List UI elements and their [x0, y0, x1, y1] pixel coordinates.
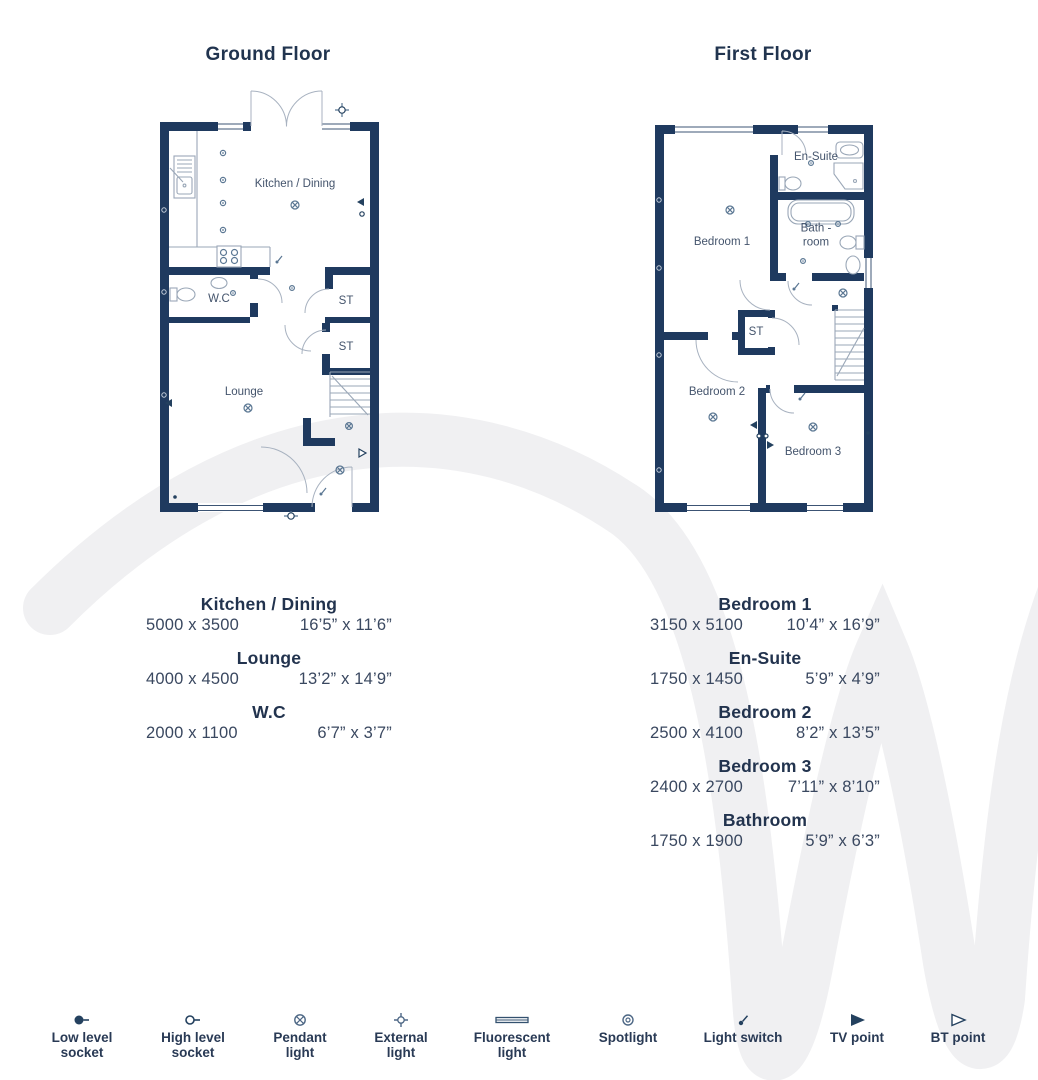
- room-label-bathroom: Bath -room: [793, 222, 839, 251]
- light-switch-icon: [320, 488, 327, 496]
- spotlight-icon: [611, 1012, 645, 1028]
- door-swings: [696, 131, 812, 413]
- dimension-entry: Kitchen / Dining 5000 x 3500 16’5” x 11’…: [146, 594, 392, 635]
- dimension-entry: Lounge 4000 x 4500 13’2” x 14’9”: [146, 648, 392, 689]
- pendant-light-icon: [291, 201, 299, 209]
- legend-label: BT point: [931, 1030, 986, 1045]
- fluorescent-light-icon: [492, 1012, 532, 1028]
- dimension-imperial: 13’2” x 14’9”: [299, 670, 392, 689]
- dimension-metric: 5000 x 3500: [146, 616, 239, 635]
- toilet: [779, 177, 785, 190]
- legend-label: Fluorescent light: [466, 1030, 558, 1060]
- room-label-st: ST: [749, 325, 764, 339]
- dimension-metric: 4000 x 4500: [146, 670, 239, 689]
- tv-point-icon: [357, 198, 364, 206]
- room-label-st2: ST: [339, 340, 354, 354]
- ground-floor-title: Ground Floor: [153, 44, 383, 66]
- legend-item-spotlight: Spotlight: [573, 1012, 683, 1045]
- dimension-imperial: 5’9” x 6’3”: [805, 832, 880, 851]
- high-level-socket-icon: [360, 212, 364, 216]
- dimension-metric: 2400 x 2700: [650, 778, 743, 797]
- legend-label: Low level socket: [42, 1030, 122, 1060]
- legend-label: High level socket: [153, 1030, 233, 1060]
- low-level-socket-icon: [173, 495, 177, 499]
- tv-point-icon: [750, 421, 757, 429]
- dimension-entry: En-Suite 1750 x 1450 5’9” x 4’9”: [650, 648, 880, 689]
- staircase: [330, 372, 370, 417]
- room-label-ensuite: En-Suite: [794, 150, 838, 164]
- room-label-lounge: Lounge: [225, 385, 263, 399]
- dimension-imperial: 8’2” x 13’5”: [796, 724, 880, 743]
- dimension-imperial: 5’9” x 4’9”: [805, 670, 880, 689]
- first-floor-dimensions: Bedroom 1 3150 x 5100 10’4” x 16’9” En-S…: [650, 594, 880, 864]
- legend-item-fluorescent-light: Fluorescent light: [466, 1012, 558, 1060]
- dimension-metric: 2500 x 4100: [650, 724, 743, 743]
- legend-label: TV point: [830, 1030, 884, 1045]
- toilet: [856, 236, 864, 249]
- staircase: [835, 310, 864, 380]
- toilet: [170, 288, 177, 301]
- legend-label: Light switch: [704, 1030, 783, 1045]
- legend-item-bt-point: BT point: [903, 1012, 1013, 1045]
- dimension-room-name: En-Suite: [650, 648, 880, 669]
- high-level-socket-icon: [764, 434, 768, 438]
- dimension-imperial: 10’4” x 16’9”: [787, 616, 880, 635]
- shower: [834, 163, 863, 189]
- dimension-room-name: Bedroom 1: [650, 594, 880, 615]
- dimension-metric: 1750 x 1900: [650, 832, 743, 851]
- external-light-icon: [284, 511, 298, 519]
- dimension-entry: Bedroom 3 2400 x 2700 7’11” x 8’10”: [650, 756, 880, 797]
- spotlight-icon: [220, 177, 225, 182]
- dimension-room-name: Bedroom 3: [650, 756, 880, 777]
- first-floor-title: First Floor: [648, 44, 878, 66]
- dimension-metric: 3150 x 5100: [650, 616, 743, 635]
- legend-item-high-level-socket: High level socket: [153, 1012, 233, 1060]
- dimension-entry: Bathroom 1750 x 1900 5’9” x 6’3”: [650, 810, 880, 851]
- ground-floor-dimensions: Kitchen / Dining 5000 x 3500 16’5” x 11’…: [146, 594, 392, 756]
- pendant-light-icon: [709, 413, 717, 421]
- legend-item-external-light: External light: [366, 1012, 436, 1060]
- dimension-metric: 2000 x 1100: [146, 724, 238, 743]
- dimension-room-name: W.C: [146, 702, 392, 723]
- high-level-socket-icon: [176, 1012, 210, 1028]
- high-level-socket-icon: [757, 434, 761, 438]
- low-level-socket-icon: [65, 1012, 99, 1028]
- pendant-light-icon: [839, 289, 847, 297]
- dimension-metric: 1750 x 1450: [650, 670, 743, 689]
- external-light-icon: [384, 1012, 418, 1028]
- legend-item-pendant-light: Pendant light: [265, 1012, 335, 1060]
- room-label-bedroom2: Bedroom 2: [688, 385, 746, 399]
- dimension-entry: Bedroom 1 3150 x 5100 10’4” x 16’9”: [650, 594, 880, 635]
- dimension-entry: W.C 2000 x 1100 6’7” x 3’7”: [146, 702, 392, 743]
- room-label-wc: W.C: [208, 292, 230, 306]
- room-label-st1: ST: [339, 294, 354, 308]
- room-label-bedroom1: Bedroom 1: [693, 235, 751, 249]
- legend-item-light-switch: Light switch: [688, 1012, 798, 1045]
- external-light-icon: [335, 103, 349, 117]
- room-label-bedroom3: Bedroom 3: [784, 445, 842, 459]
- dimension-room-name: Bedroom 2: [650, 702, 880, 723]
- dimension-room-name: Lounge: [146, 648, 392, 669]
- low-level-socket-icon: [866, 431, 870, 435]
- pendant-light-icon: [346, 423, 353, 430]
- tv-point-icon: [840, 1012, 874, 1028]
- spotlight-icon: [801, 259, 806, 264]
- dimension-room-name: Kitchen / Dining: [146, 594, 392, 615]
- basin: [211, 278, 227, 289]
- kitchen-hob: [217, 246, 241, 267]
- spotlight-icon: [220, 227, 225, 232]
- spotlight-icon: [220, 150, 225, 155]
- legend-item-tv-point: TV point: [802, 1012, 912, 1045]
- door-swings: [251, 91, 352, 507]
- first-floor-plan: Bedroom 1 En-Suite Bath -room ST Bedroom…: [648, 93, 878, 523]
- dimension-imperial: 16’5” x 11’6”: [300, 616, 392, 635]
- dimension-imperial: 7’11” x 8’10”: [788, 778, 880, 797]
- legend-label: Spotlight: [599, 1030, 657, 1045]
- legend-item-low-level-socket: Low level socket: [42, 1012, 122, 1060]
- light-switch-icon: [726, 1012, 760, 1028]
- spotlight-icon: [220, 200, 225, 205]
- spotlight-icon: [290, 286, 295, 291]
- dimension-imperial: 6’7” x 3’7”: [317, 724, 392, 743]
- pendant-light-icon: [283, 1012, 317, 1028]
- dimension-entry: Bedroom 2 2500 x 4100 8’2” x 13’5”: [650, 702, 880, 743]
- light-switch-icon: [793, 283, 800, 291]
- ground-floor-plan: Kitchen / Dining W.C ST ST Lounge: [153, 90, 383, 520]
- dimension-room-name: Bathroom: [650, 810, 880, 831]
- basin: [846, 256, 860, 274]
- pendant-light-icon: [726, 206, 734, 214]
- light-switch-icon: [799, 393, 806, 401]
- tv-point-icon: [767, 441, 774, 449]
- legend-label: Pendant light: [265, 1030, 335, 1060]
- pendant-light-icon: [244, 404, 252, 412]
- kitchen-fittings: [169, 131, 270, 267]
- pendant-light-icon: [809, 423, 817, 431]
- spotlight-icon: [231, 291, 236, 296]
- light-switch-icon: [276, 256, 283, 264]
- legend-label: External light: [366, 1030, 436, 1060]
- room-label-kitchen: Kitchen / Dining: [255, 177, 336, 191]
- bt-point-icon: [359, 449, 366, 457]
- bt-point-icon: [941, 1012, 975, 1028]
